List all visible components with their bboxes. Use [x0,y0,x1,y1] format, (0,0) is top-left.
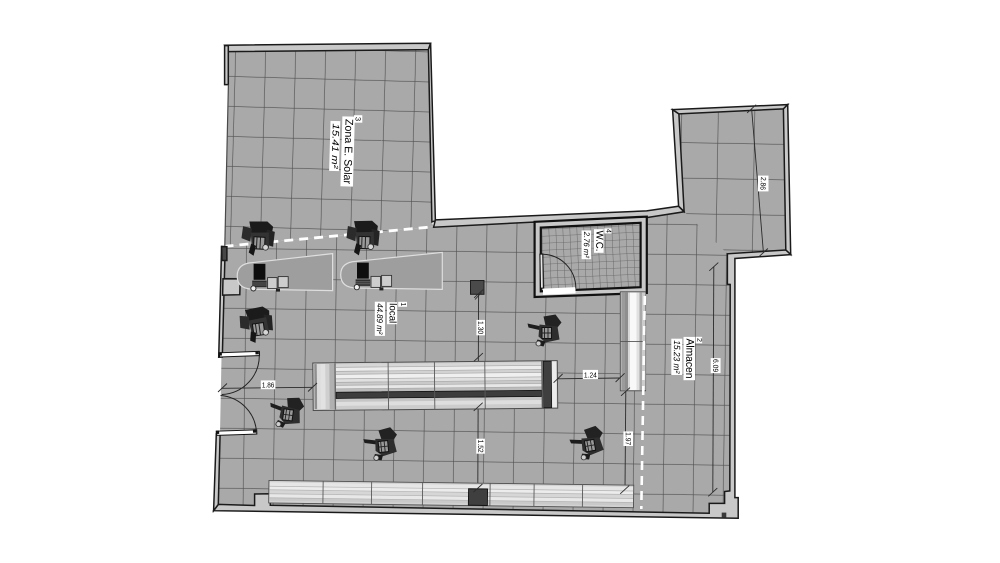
svg-text:6.09: 6.09 [711,359,720,372]
svg-text:local: local [386,303,397,323]
svg-text:1: 1 [399,302,406,306]
svg-text:15.41 m²: 15.41 m² [329,123,341,169]
svg-text:1.86: 1.86 [262,381,275,390]
svg-text:1.30: 1.30 [476,321,485,334]
svg-text:44.89 m²: 44.89 m² [375,303,385,335]
svg-text:1.24: 1.24 [584,370,597,379]
svg-text:4: 4 [604,229,611,233]
svg-text:Almacen: Almacen [683,338,696,378]
svg-text:1.52: 1.52 [476,440,485,453]
svg-text:2.86: 2.86 [758,177,768,190]
svg-text:1.97: 1.97 [624,432,633,445]
svg-text:W.C.: W.C. [593,230,604,251]
svg-text:2.76 m²: 2.76 m² [582,231,591,258]
svg-text:Zona E. Solar: Zona E. Solar [341,119,355,185]
svg-text:15.23 m²: 15.23 m² [672,340,682,374]
